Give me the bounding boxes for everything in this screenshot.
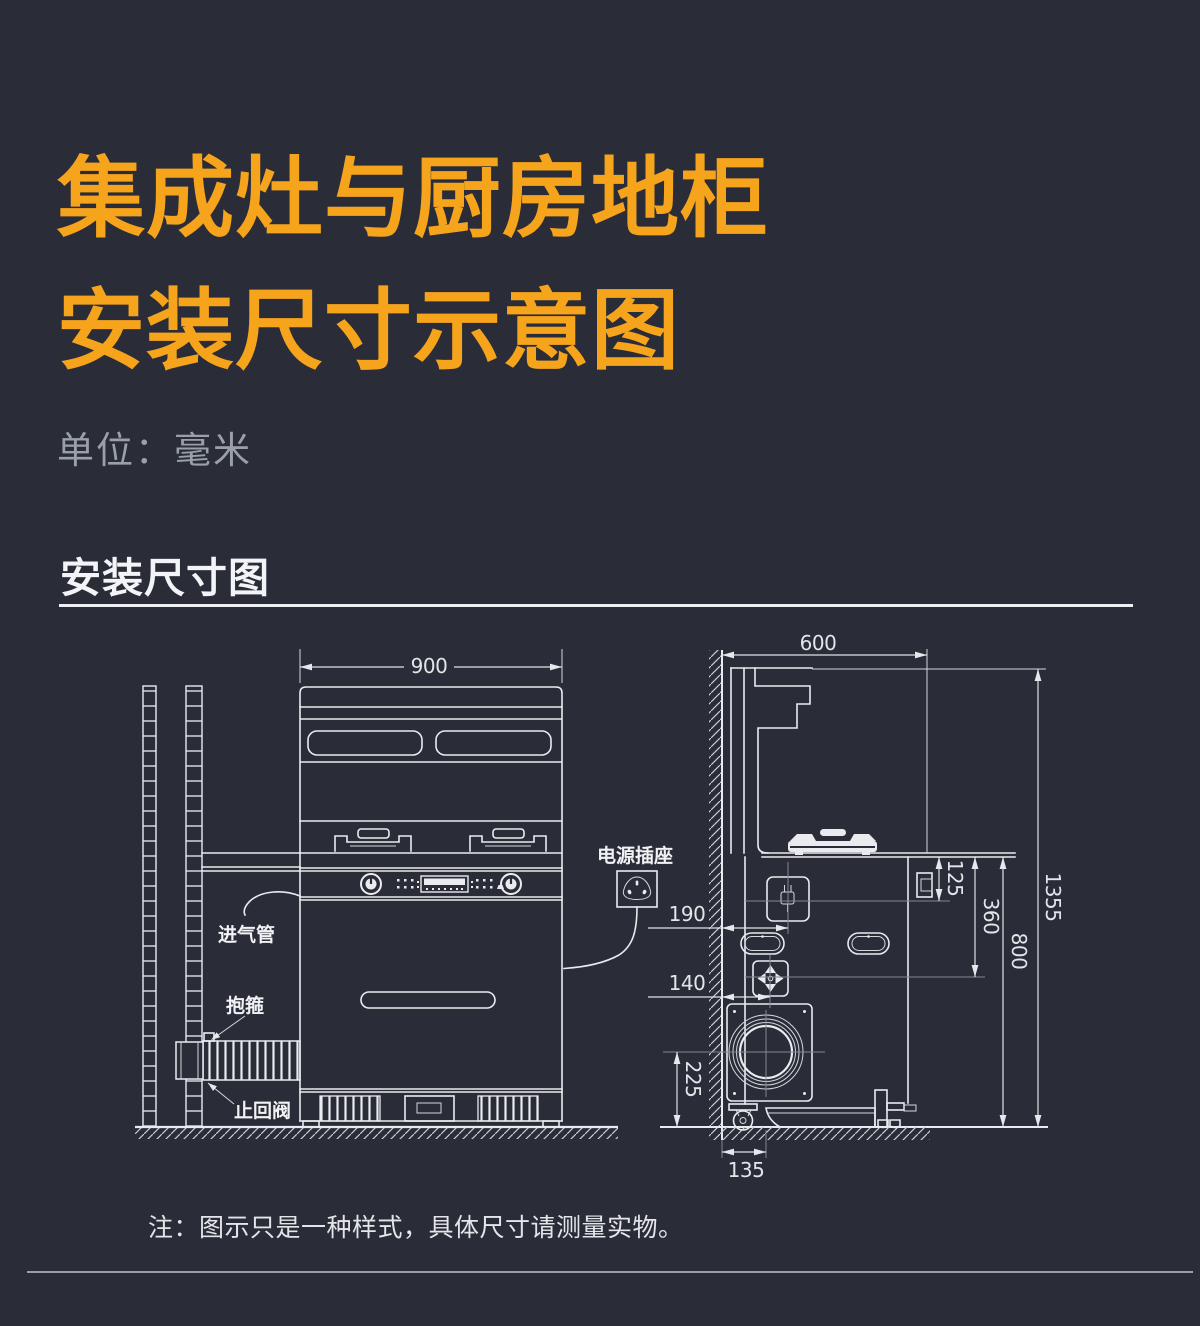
check-valve (176, 1042, 203, 1079)
dim-140-value: 140 (669, 971, 706, 995)
clamp-leader (214, 1016, 245, 1038)
burner-left (335, 829, 411, 851)
clamp (204, 1033, 214, 1041)
dim-125-value: 125 (943, 860, 967, 897)
fan-outlet (727, 1004, 812, 1101)
floor-right (660, 1127, 1048, 1140)
stove-foot (303, 1121, 319, 1127)
dim-190-value: 190 (669, 902, 706, 926)
dim-225-value: 225 (681, 1061, 705, 1098)
floor-left (135, 1127, 618, 1139)
dim-125: 125 (936, 857, 967, 901)
exhaust-duct-assembly (176, 1033, 300, 1080)
clamp-label: 抱箍 (226, 994, 264, 1017)
dim-600-value: 600 (800, 631, 837, 655)
front-view: 进气管 抱箍 止回阀 (135, 649, 673, 1139)
page-title-line-2: 安装尺寸示意图 (57, 287, 680, 375)
section-divider (59, 604, 1133, 607)
dim-900: 900 (300, 649, 562, 683)
control-display (397, 876, 504, 892)
burner-right (470, 829, 546, 851)
stove-front (300, 687, 562, 1127)
dim-225: 225 (674, 1052, 705, 1127)
hood-vent-slot (436, 731, 551, 755)
page: 集成灶与厨房地柜 安装尺寸示意图 单位：毫米 安装尺寸图 (0, 0, 1200, 1326)
note-text: 注：图示只是一种样式，具体尺寸请测量实物。 (148, 1208, 684, 1244)
side-countertop (202, 853, 300, 871)
dim-360: 360 (972, 857, 1003, 977)
dim-190: 190 (648, 902, 788, 931)
bottom-divider (27, 1271, 1193, 1273)
control-panel (300, 868, 562, 900)
dim-140: 140 (648, 971, 770, 1000)
dim-135: 135 (722, 1149, 766, 1182)
hood-side-profile (731, 668, 812, 853)
dim-900-value: 900 (411, 654, 448, 678)
power-cord (564, 907, 637, 969)
rear-socket-outlet (767, 877, 809, 921)
wall-flue-duct (143, 686, 202, 1127)
counter-edge-bracket (917, 873, 932, 897)
oval-knockouts (741, 933, 889, 954)
section-heading: 安装尺寸图 (60, 544, 270, 604)
dim-1355-value: 1355 (1041, 873, 1065, 922)
centerlines (663, 862, 985, 1158)
power-socket: 电源插座 (564, 844, 673, 969)
dim-600: 600 (722, 631, 927, 853)
stove-foot (543, 1121, 559, 1127)
power-socket-label: 电源插座 (597, 844, 673, 867)
dim-800: 800 (1000, 857, 1031, 1127)
gas-hose (244, 892, 300, 915)
hood-top-cap (300, 687, 562, 707)
dim-135-value: 135 (728, 1158, 765, 1182)
caster-wheel (729, 1104, 757, 1130)
dim-1355: 1355 (812, 669, 1065, 1127)
base-frame (766, 1090, 916, 1128)
cabinet-side (745, 857, 932, 1104)
socket-icon (617, 871, 657, 907)
knob-right (501, 874, 521, 894)
dim-360-value: 360 (979, 898, 1003, 935)
hood-vent-slot (308, 731, 422, 755)
corrugated-duct (203, 1041, 300, 1080)
knob-left (361, 874, 381, 894)
bottom-vents (320, 1096, 538, 1121)
countertop (762, 853, 1015, 857)
check-valve-label: 止回阀 (234, 1099, 291, 1122)
dim-800-value: 800 (1007, 933, 1031, 970)
side-view: 600 1355 800 360 (648, 631, 1065, 1182)
cooktop-side (788, 829, 877, 855)
unit-label: 单位：毫米 (57, 420, 252, 474)
drawer-handle (361, 992, 495, 1008)
wall-section (709, 650, 722, 1140)
gas-inlet-pipe-label: 进气管 (218, 923, 275, 946)
gas-valve-fitting (753, 961, 788, 996)
page-title-line-1: 集成灶与厨房地柜 (57, 155, 769, 243)
check-valve-leader (208, 1083, 234, 1104)
